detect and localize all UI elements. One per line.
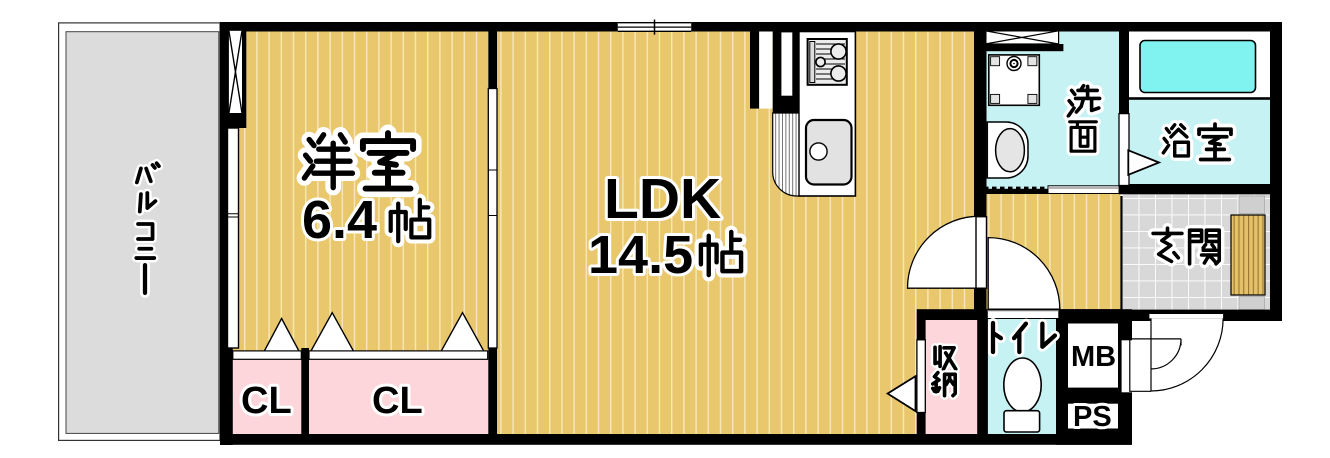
svg-text:CL: CL [241, 380, 292, 422]
svg-text:PS: PS [1073, 401, 1112, 433]
svg-text:14.5: 14.5 [588, 225, 693, 285]
svg-text:6.4: 6.4 [302, 190, 377, 250]
svg-text:CL: CL [372, 380, 423, 422]
svg-text:MB: MB [1071, 341, 1116, 373]
svg-text:LDK: LDK [604, 167, 721, 231]
